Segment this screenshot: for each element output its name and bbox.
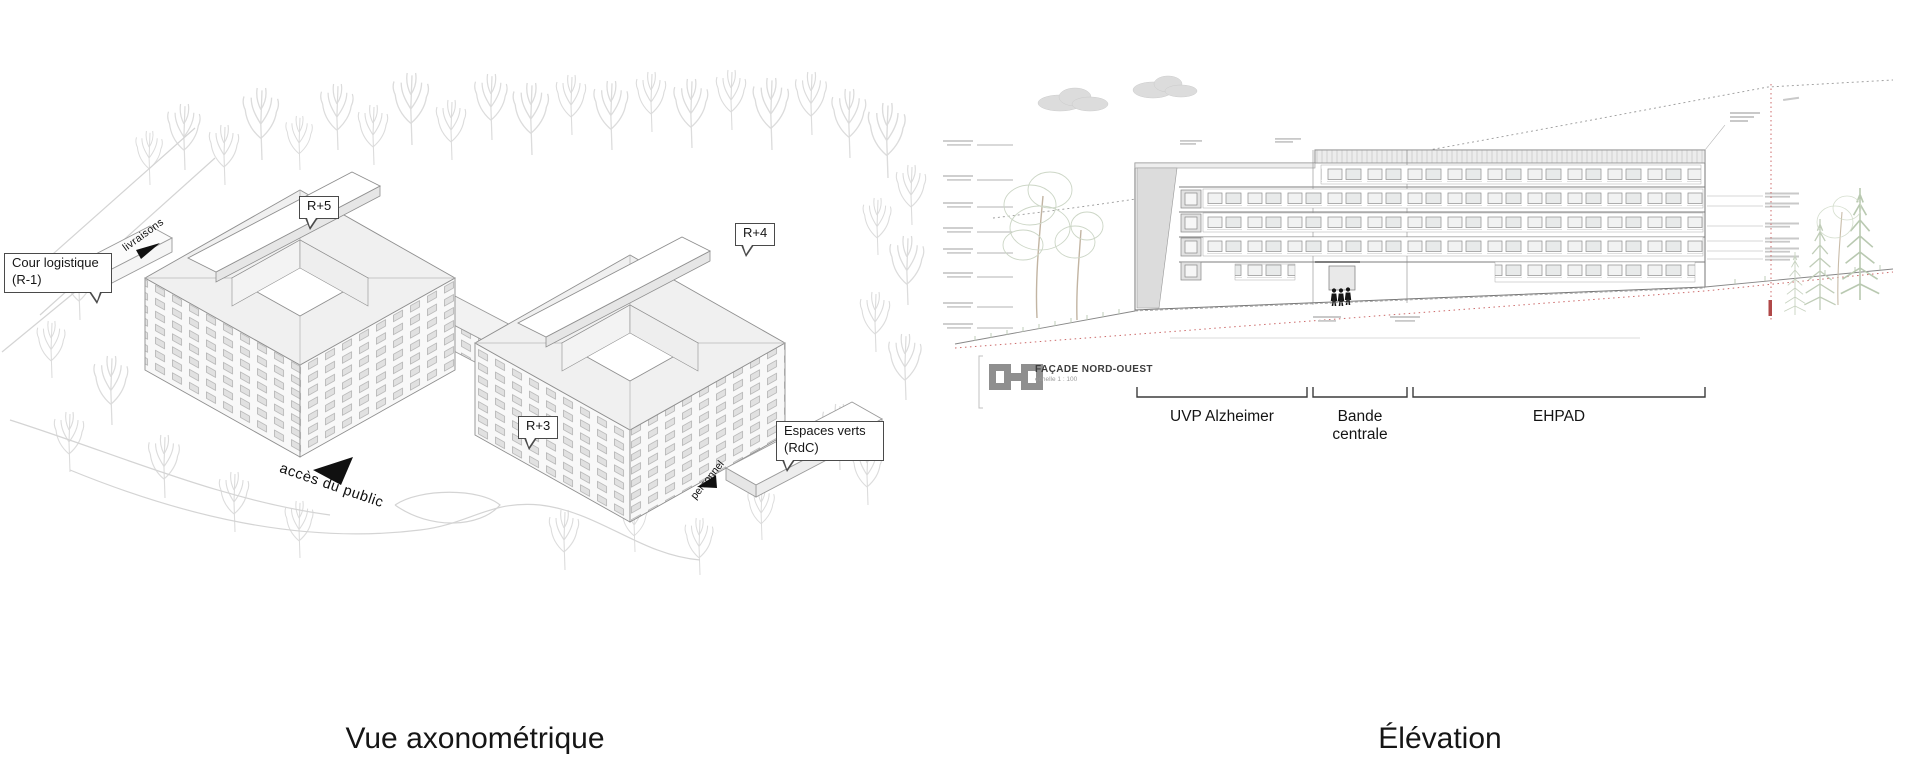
key-plan-icon [979, 356, 1043, 408]
facade-title-block: FAÇADE NORD-OUEST échelle 1 : 100 [1035, 364, 1153, 383]
section-label-ehpad: EHPAD [1413, 408, 1705, 426]
facade-title: FAÇADE NORD-OUEST [1035, 364, 1153, 375]
window-row [1203, 237, 1703, 256]
callout-cour-logistique: Cour logistique (R-1) [4, 253, 112, 293]
axonometric-drawing [0, 0, 935, 778]
people-silhouettes [1331, 287, 1351, 306]
elevation-drawing [935, 0, 1920, 778]
facade-scale-note: échelle 1 : 100 [1035, 376, 1153, 383]
trees-right [1784, 188, 1879, 315]
facade-building [1135, 150, 1705, 310]
level-markers [943, 140, 1013, 329]
window-row [1203, 213, 1703, 232]
bracket-uvp [1137, 387, 1307, 397]
ground-floor-windows [1495, 262, 1695, 282]
section-brackets [1137, 387, 1705, 397]
section-label-bande-centrale: Bande centrale [1313, 408, 1407, 445]
callout-r5: R+5 [299, 196, 339, 219]
axonometric-view-panel [0, 0, 935, 778]
foreground-trees-left [1003, 172, 1103, 320]
window-row [1321, 165, 1701, 184]
axonometric-caption: Vue axonométrique [175, 722, 775, 756]
cloud-icons [1038, 76, 1197, 111]
entrance-door [1329, 266, 1355, 290]
elevation-view-panel [935, 0, 1920, 778]
section-label-uvp-alzheimer: UVP Alzheimer [1137, 408, 1307, 426]
bracket-ehpad [1413, 387, 1705, 397]
roof-parapet-band [1315, 150, 1705, 163]
callout-r4: R+4 [735, 223, 775, 246]
window-row [1203, 189, 1703, 208]
callout-espaces-verts: Espaces verts (RdC) [776, 421, 884, 461]
presentation-sheet: { "slide": { "background_color": "#fffff… [0, 0, 1920, 778]
elevation-caption: Élévation [1140, 722, 1740, 756]
callout-r3: R+3 [518, 416, 558, 439]
bracket-bande-centrale [1313, 387, 1407, 397]
